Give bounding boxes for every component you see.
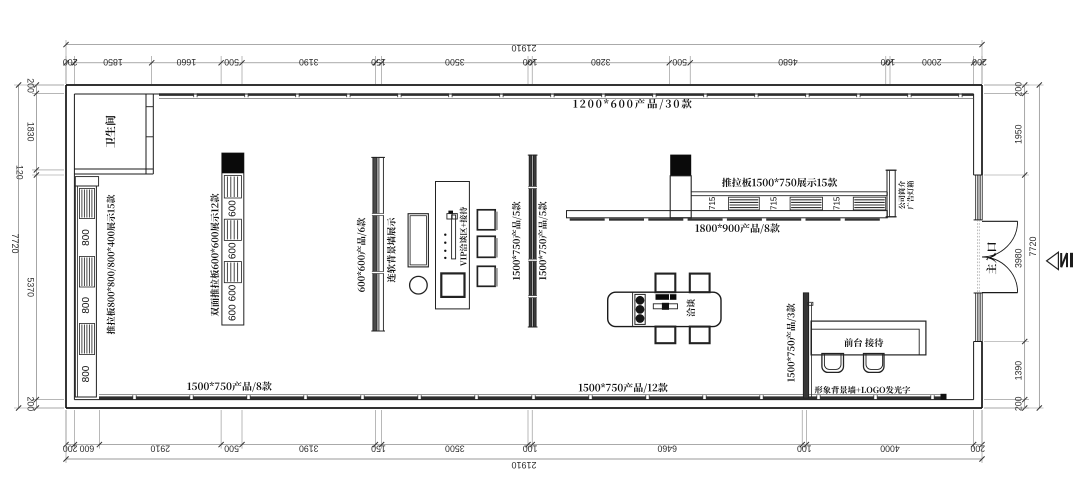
svg-text:4000: 4000 (880, 443, 900, 453)
svg-text:715: 715 (708, 196, 717, 210)
svg-text:800: 800 (81, 297, 92, 314)
svg-text:3190: 3190 (299, 443, 319, 453)
svg-text:100: 100 (797, 443, 812, 453)
svg-text:120: 120 (15, 165, 25, 180)
svg-text:200: 200 (1014, 82, 1024, 97)
svg-text:600: 600 (79, 443, 94, 453)
svg-text:100: 100 (880, 57, 895, 67)
svg-text:200: 200 (63, 57, 78, 67)
svg-text:200: 200 (970, 443, 985, 453)
svg-text:1950: 1950 (1014, 124, 1024, 144)
svg-text:715: 715 (833, 196, 842, 210)
svg-text:100: 100 (523, 443, 538, 453)
svg-text:800: 800 (81, 365, 92, 382)
svg-text:7720: 7720 (1028, 236, 1038, 256)
svg-text:200: 200 (25, 78, 35, 93)
svg-text:2910: 2910 (150, 443, 170, 453)
svg-text:600: 600 (227, 304, 238, 321)
svg-text:715: 715 (769, 196, 778, 210)
svg-text:600: 600 (227, 242, 238, 259)
svg-text:1850: 1850 (103, 57, 123, 67)
svg-text:7720: 7720 (10, 233, 20, 253)
svg-text:150: 150 (371, 443, 386, 453)
svg-text:600: 600 (227, 284, 238, 301)
svg-text:500: 500 (224, 57, 239, 67)
svg-text:200: 200 (1014, 396, 1024, 411)
svg-text:800: 800 (81, 229, 92, 246)
svg-text:1830: 1830 (25, 122, 35, 142)
svg-text:150: 150 (371, 57, 386, 67)
svg-text:3190: 3190 (299, 57, 319, 67)
svg-text:500: 500 (672, 57, 687, 67)
svg-text:6460: 6460 (657, 443, 677, 453)
svg-text:3500: 3500 (445, 57, 465, 67)
svg-text:200: 200 (972, 57, 987, 67)
svg-text:200: 200 (25, 396, 35, 411)
svg-text:600: 600 (227, 200, 238, 217)
svg-text:3980: 3980 (1014, 248, 1024, 268)
svg-text:5370: 5370 (25, 278, 35, 298)
svg-text:2000: 2000 (922, 57, 942, 67)
svg-text:100: 100 (523, 57, 538, 67)
svg-text:4680: 4680 (778, 57, 798, 67)
svg-text:3500: 3500 (445, 443, 465, 453)
svg-text:500: 500 (224, 443, 239, 453)
svg-text:3280: 3280 (591, 57, 611, 67)
svg-text:200: 200 (63, 443, 78, 453)
svg-text:1660: 1660 (177, 57, 197, 67)
svg-text:21910: 21910 (511, 43, 536, 53)
svg-text:21910: 21910 (511, 460, 536, 470)
svg-text:1390: 1390 (1014, 361, 1024, 381)
